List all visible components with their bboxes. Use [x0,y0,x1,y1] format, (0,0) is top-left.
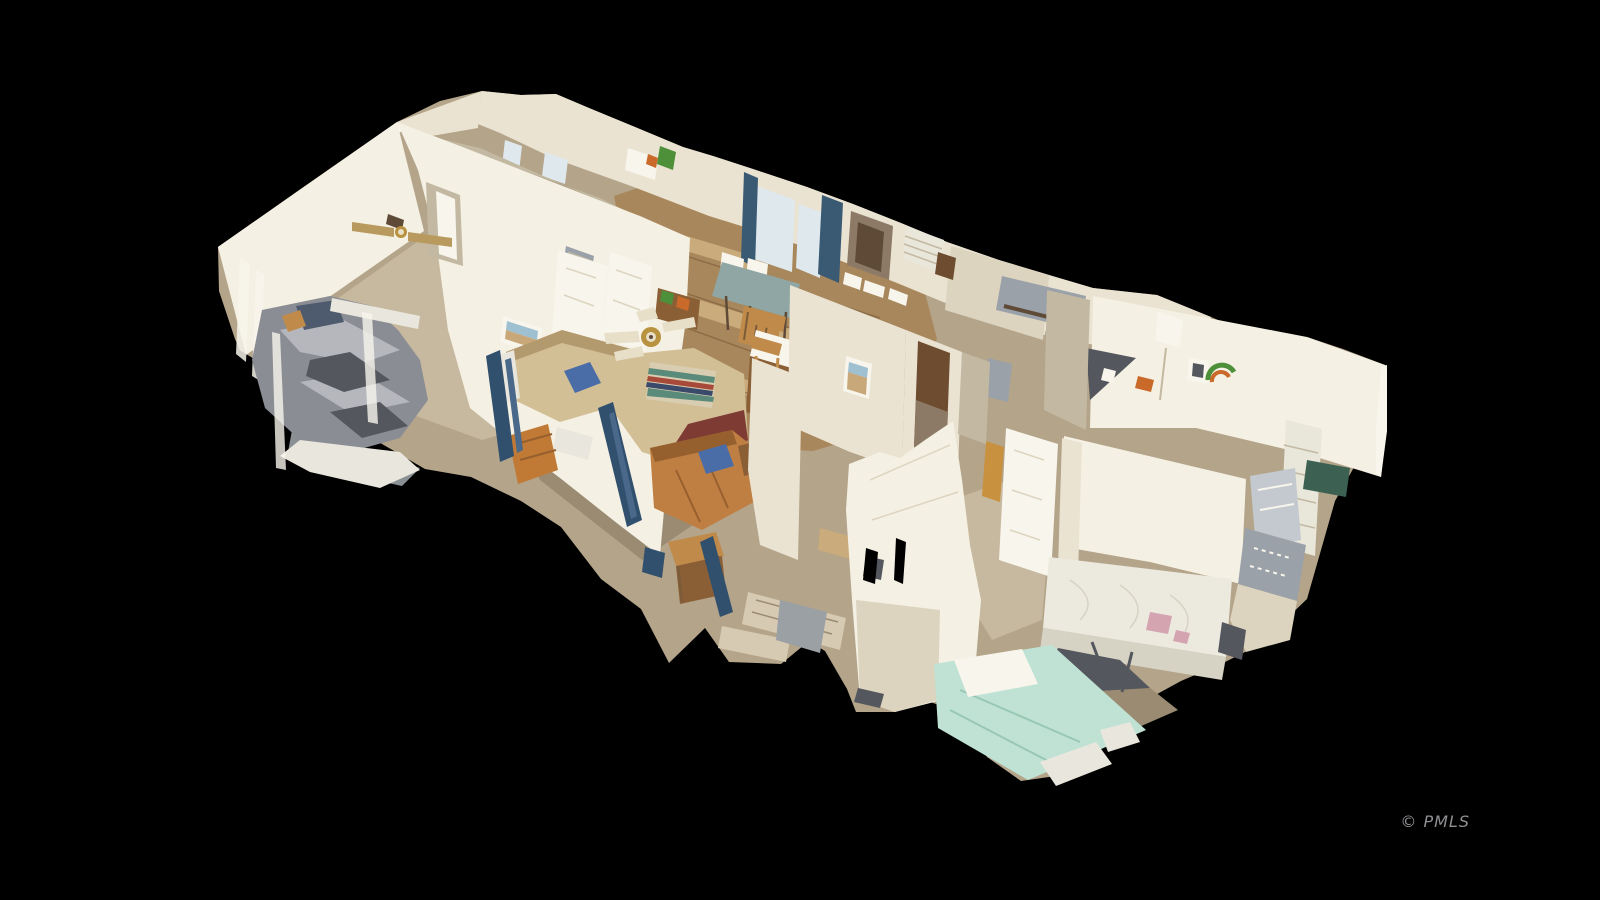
copyright-watermark: © PMLS [1400,812,1470,831]
bedroom-doorway-door [436,191,457,260]
bathroom-inner-wall [1044,290,1090,430]
door-jamb-wall [1058,438,1082,575]
dollhouse-3d-render[interactable]: © PMLS [0,0,1600,900]
bathroom-doorway-gap [958,352,990,444]
dollhouse-view: © PMLS [0,0,1600,900]
picture-frame-small-art [1192,363,1204,378]
open-white-door [999,428,1058,577]
